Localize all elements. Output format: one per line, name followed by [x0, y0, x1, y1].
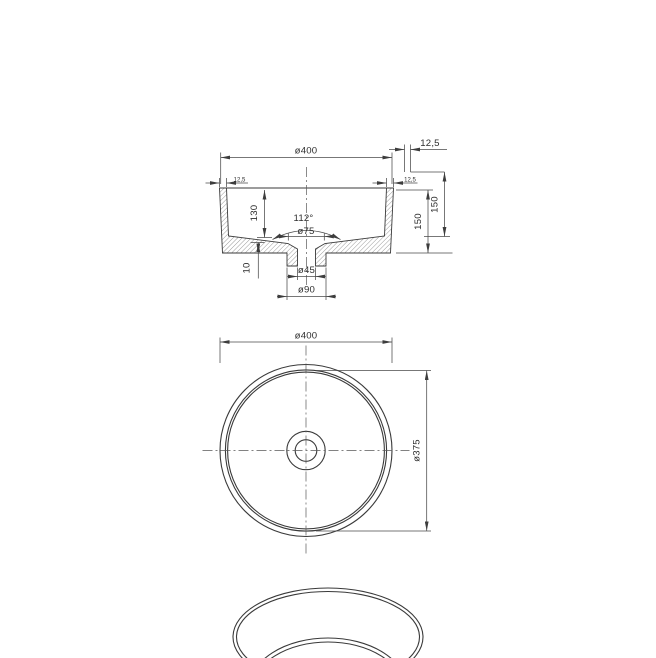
dim-wall-thickness-right: 12,5 — [373, 178, 418, 188]
dim-rim-offset: 12,5 — [389, 138, 447, 172]
section-view: ø400 12,5 12,5 12,5 — [206, 138, 453, 300]
drawing-page: ø400 12,5 12,5 12,5 — [0, 0, 656, 658]
dim-label-130: 130 — [249, 205, 260, 222]
dim-label-112deg: 112° — [294, 213, 314, 224]
basin-cross-section-right — [316, 188, 394, 266]
technical-drawing: ø400 12,5 12,5 12,5 — [0, 0, 656, 658]
dim-label-o400-plan: ø400 — [295, 331, 318, 342]
dim-label-o75: ø75 — [297, 226, 314, 237]
dim-wall-thickness-left: 12,5 — [206, 178, 249, 188]
perspective-rim-outer — [233, 588, 423, 658]
perspective-bowl-inner-a — [249, 638, 407, 658]
dim-inner-depth: 130 — [249, 190, 272, 238]
perspective-rim-outer-inner-line — [237, 592, 420, 658]
dim-label-12-5-top: 12,5 — [420, 138, 439, 149]
dim-label-150-inner: 150 — [413, 213, 424, 230]
dim-label-o375: ø375 — [412, 439, 423, 462]
dim-label-12-5-left: 12,5 — [234, 178, 246, 184]
dim-height-inner: 150 — [396, 190, 453, 253]
dim-label-12-5-right: 12,5 — [404, 178, 416, 184]
dim-outer-diameter-section: ø400 — [221, 146, 392, 185]
dim-label-o45: ø45 — [298, 265, 315, 276]
dim-label-o400-section: ø400 — [295, 146, 318, 157]
dim-label-o90: ø90 — [298, 285, 315, 296]
perspective-bowl-inner-b — [253, 642, 404, 658]
dim-label-10: 10 — [242, 262, 253, 273]
dim-label-150-outer: 150 — [430, 196, 441, 213]
plan-view: ø400 ø375 — [203, 331, 432, 557]
perspective-view — [233, 588, 423, 658]
